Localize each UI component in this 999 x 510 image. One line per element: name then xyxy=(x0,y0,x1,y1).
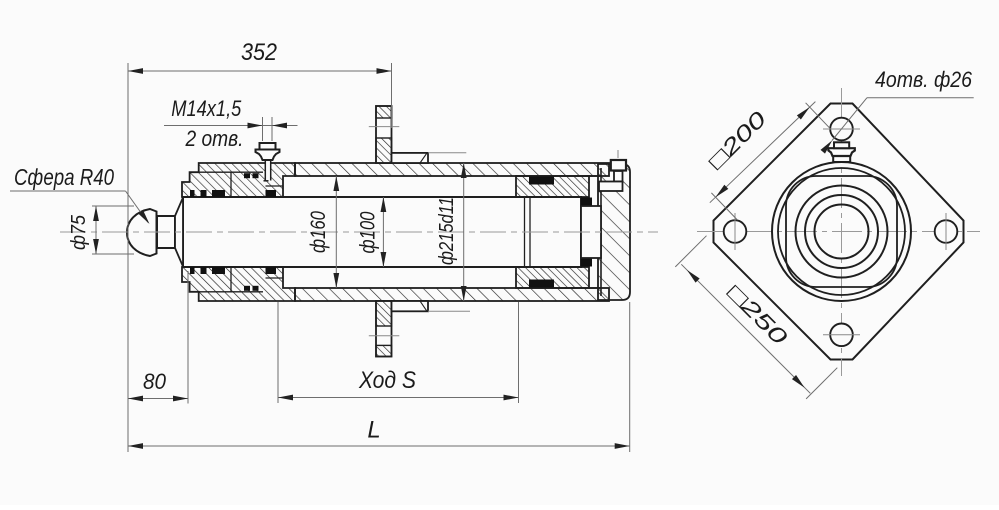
svg-text:2 отв.: 2 отв. xyxy=(185,126,244,151)
svg-text:ф100: ф100 xyxy=(357,211,380,253)
svg-text:ф215d11: ф215d11 xyxy=(436,197,458,265)
svg-text:4отв. ф26: 4отв. ф26 xyxy=(875,67,973,92)
svg-text:352: 352 xyxy=(241,39,277,66)
svg-text:80: 80 xyxy=(143,369,167,394)
svg-text:Ход S: Ход S xyxy=(358,367,416,394)
svg-text:Сфера R40: Сфера R40 xyxy=(14,164,114,190)
svg-text:ф160: ф160 xyxy=(307,211,330,253)
svg-text:L: L xyxy=(367,417,380,444)
svg-text:ф75: ф75 xyxy=(68,214,90,250)
svg-text:М14х1,5: М14х1,5 xyxy=(171,96,242,121)
